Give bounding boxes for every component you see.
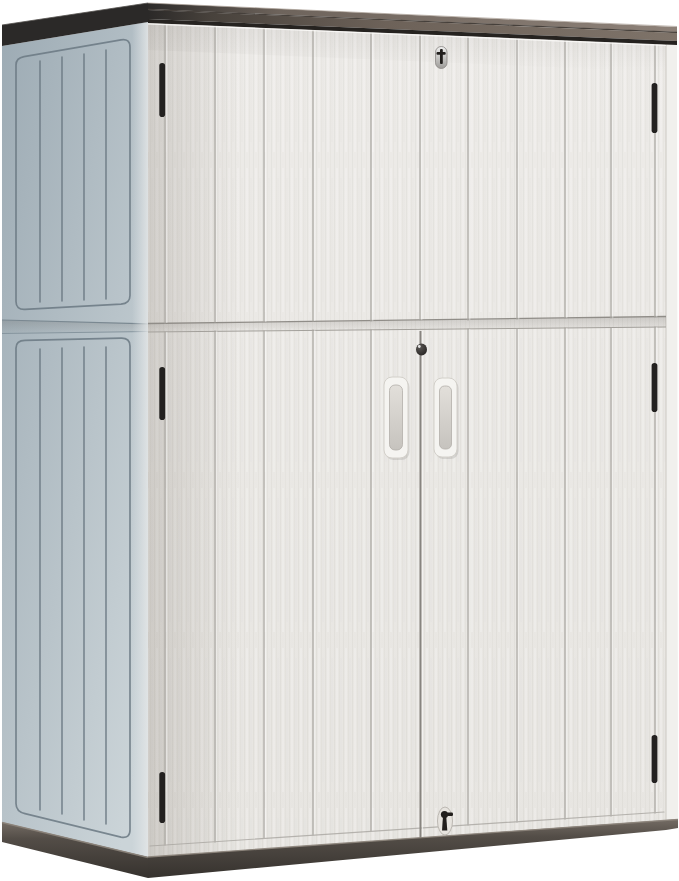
front-face-corner-shadow (148, 22, 240, 857)
lock-knob-middle (416, 344, 427, 356)
hinge-left-top (159, 63, 165, 117)
hinge-left-bottom (159, 772, 165, 823)
storage-cabinet-photo: Product photo of a two-tier light gray r… (0, 0, 679, 881)
hinge-right-middle (652, 363, 658, 412)
corner-edge (132, 22, 150, 857)
handle-right (434, 378, 459, 459)
hinge-right-top (652, 83, 658, 133)
door-center-seam (421, 331, 423, 843)
hinge-right-bottom (652, 735, 658, 783)
right-return-edge (666, 44, 678, 820)
side-panel (2, 22, 148, 857)
hinge-left-middle (159, 367, 165, 420)
handle-left (384, 377, 410, 460)
keyhole-bottom (438, 807, 454, 835)
keyhole-top (436, 47, 448, 69)
product-image: Product photo of a two-tier light gray r… (0, 0, 679, 881)
